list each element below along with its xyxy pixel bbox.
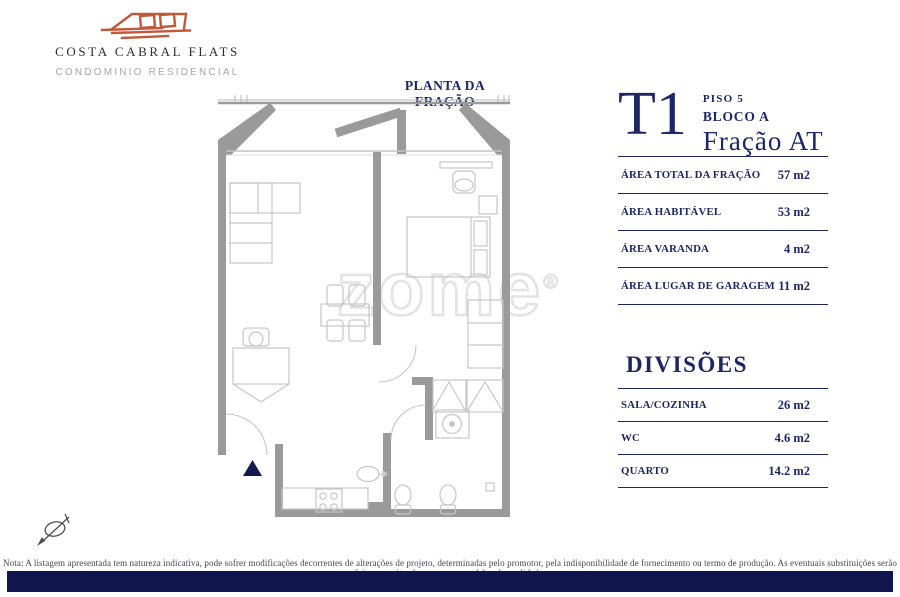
desk <box>233 328 289 402</box>
unit-header: T1 PISO 5 BLOCO A Fração AT <box>618 86 828 157</box>
page: COSTA CABRAL FLATS CONDOMINIO RESIDENCIA… <box>0 0 900 597</box>
entrance-door-arc <box>226 414 267 455</box>
area-table: ÁREA TOTAL DA FRAÇÃO 57 m2 ÁREA HABITÁVE… <box>618 156 828 305</box>
unit-floor: PISO 5 <box>703 93 824 105</box>
sofa <box>230 183 300 263</box>
sink <box>357 467 387 482</box>
divisions-title: DIVISÕES <box>626 352 748 378</box>
area-value: 11 m2 <box>778 279 828 294</box>
brand-subtitle: CONDOMINIO RESIDENCIAL <box>55 67 240 78</box>
table-row: ÁREA TOTAL DA FRAÇÃO 57 m2 <box>618 157 828 194</box>
wall-hall-v <box>425 377 433 440</box>
division-value: 14.2 m2 <box>768 464 828 479</box>
division-label: SALA/COZINHA <box>618 399 707 411</box>
door-arcs <box>226 345 426 455</box>
bottom-bar <box>7 571 893 592</box>
walls <box>218 149 510 517</box>
unit-type: T1 <box>618 86 687 143</box>
table-row: ÁREA VARANDA 4 m2 <box>618 231 828 268</box>
table-row: ÁREA HABITÁVEL 53 m2 <box>618 194 828 231</box>
table-row: WC 4.6 m2 <box>618 422 828 455</box>
wall-middle <box>373 152 381 345</box>
division-value: 4.6 m2 <box>775 431 828 446</box>
wardrobe <box>468 300 503 368</box>
area-value: 4 m2 <box>784 242 828 257</box>
bedroom-door-arc <box>379 345 416 382</box>
bed <box>407 196 497 277</box>
compass-icon <box>32 511 76 553</box>
wall-left <box>218 149 226 455</box>
division-value: 26 m2 <box>778 398 828 413</box>
balcony <box>218 103 510 155</box>
wall-bottom <box>275 509 510 517</box>
bedroom-shelf <box>440 162 492 193</box>
floor-plan <box>215 92 515 524</box>
hall-closets <box>433 380 503 412</box>
wall-stub <box>368 502 384 517</box>
dining-set <box>321 285 369 341</box>
nightstand <box>479 196 497 214</box>
washing-machine <box>436 410 469 438</box>
divisions-table: SALA/COZINHA 26 m2 WC 4.6 m2 QUARTO 14.2… <box>618 388 828 488</box>
registered-mark-icon: ® <box>543 272 561 294</box>
unit-info-panel: T1 PISO 5 BLOCO A Fração AT ÁREA TOTAL D… <box>618 86 828 157</box>
area-label: ÁREA LUGAR DE GARAGEM <box>618 280 775 292</box>
table-row: QUARTO 14.2 m2 <box>618 455 828 488</box>
brand-logo-icon <box>98 2 198 42</box>
division-label: QUARTO <box>618 465 669 477</box>
area-value: 57 m2 <box>778 168 828 183</box>
drain <box>486 483 494 491</box>
kitchen-counter <box>282 488 368 512</box>
table-row: ÁREA LUGAR DE GARAGEM 11 m2 <box>618 268 828 305</box>
entrance-arrow <box>243 460 262 476</box>
area-label: ÁREA TOTAL DA FRAÇÃO <box>618 169 760 181</box>
unit-fraction: Fração AT <box>703 126 824 157</box>
area-value: 53 m2 <box>778 205 828 220</box>
brand-name: COSTA CABRAL FLATS <box>55 44 240 60</box>
division-label: WC <box>618 432 640 444</box>
area-label: ÁREA VARANDA <box>618 243 709 255</box>
brand-block: COSTA CABRAL FLATS CONDOMINIO RESIDENCIA… <box>55 2 240 78</box>
area-label: ÁREA HABITÁVEL <box>618 206 721 218</box>
table-row: SALA/COZINHA 26 m2 <box>618 389 828 422</box>
wc-door-arc <box>391 405 426 440</box>
unit-block: BLOCO A <box>703 109 824 125</box>
